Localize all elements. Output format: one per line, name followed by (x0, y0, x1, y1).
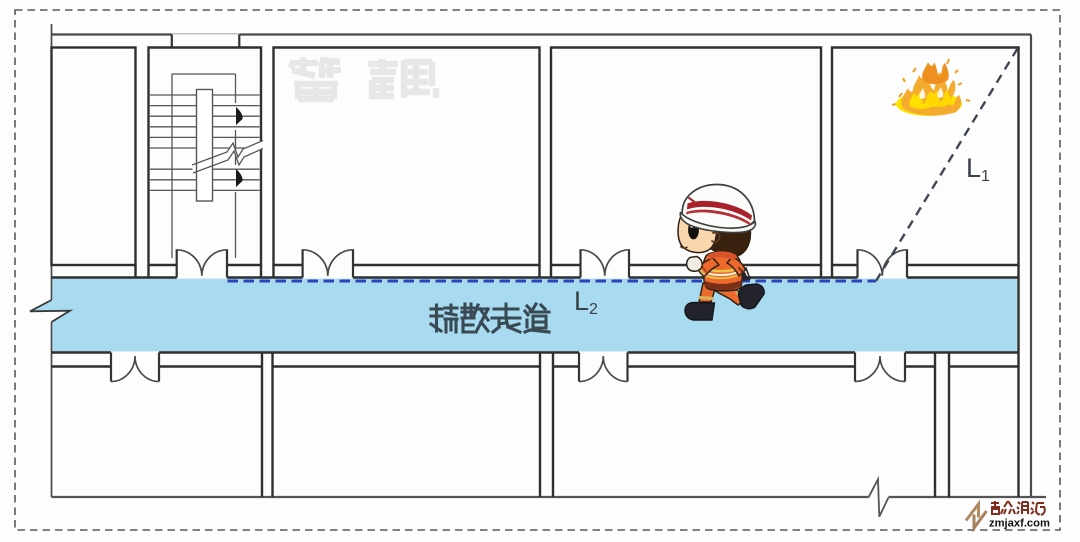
svg-text:L: L (574, 286, 589, 316)
svg-text:1: 1 (981, 168, 990, 185)
svg-text:2: 2 (589, 301, 598, 318)
svg-text:L: L (966, 153, 981, 183)
svg-text:zmjaxf.com: zmjaxf.com (989, 518, 1050, 530)
